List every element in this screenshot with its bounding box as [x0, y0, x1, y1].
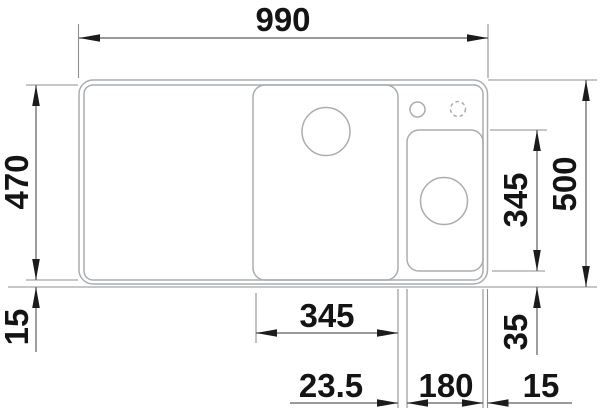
dim-990-arrow-0	[79, 34, 100, 42]
tap-hole-optional-circle	[451, 102, 466, 117]
dim-345-bottom-arrow-0	[256, 329, 277, 337]
dim-15-right-arrow-0	[488, 399, 509, 407]
dim-345-right-label: 345	[497, 172, 534, 227]
accessory-bowl-drain-circle	[421, 178, 468, 225]
dim-990-arrow-1	[467, 34, 488, 42]
dim-470-arrow-0	[32, 85, 40, 106]
dim-35-label: 35	[497, 314, 534, 351]
tap-hole-circle	[410, 102, 425, 117]
dim-23-5-arrow-0	[377, 399, 398, 407]
main-bowl	[253, 85, 398, 280]
dim-500-arrow-1	[582, 266, 590, 287]
sink-outer-edge	[79, 80, 488, 284]
dim-345-bottom-arrow-1	[377, 329, 398, 337]
technical-drawing-canvas: 990470155003453534523.518015	[0, 0, 600, 413]
dim-15-left-label: 15	[0, 309, 35, 346]
dim-35-arrow-0	[533, 287, 541, 308]
main-bowl-drain-circle	[302, 108, 350, 156]
dim-345-right-arrow-0	[533, 130, 541, 151]
sink-dimension-drawing: 990470155003453534523.518015	[0, 0, 600, 413]
dim-345-bottom-label: 345	[299, 297, 354, 334]
dim-180-label: 180	[418, 367, 473, 404]
dim-990-label: 990	[255, 1, 310, 38]
dim-500-arrow-0	[582, 80, 590, 101]
dim-15-left-arrow-0	[32, 287, 40, 308]
dim-470-arrow-1	[32, 259, 40, 280]
dim-23-5-label: 23.5	[299, 367, 363, 404]
dim-15-right-label: 15	[523, 367, 560, 404]
dim-470-label: 470	[0, 154, 35, 209]
dim-500-label: 500	[546, 156, 583, 211]
accessory-bowl	[407, 130, 483, 271]
dim-345-right-arrow-1	[533, 250, 541, 271]
